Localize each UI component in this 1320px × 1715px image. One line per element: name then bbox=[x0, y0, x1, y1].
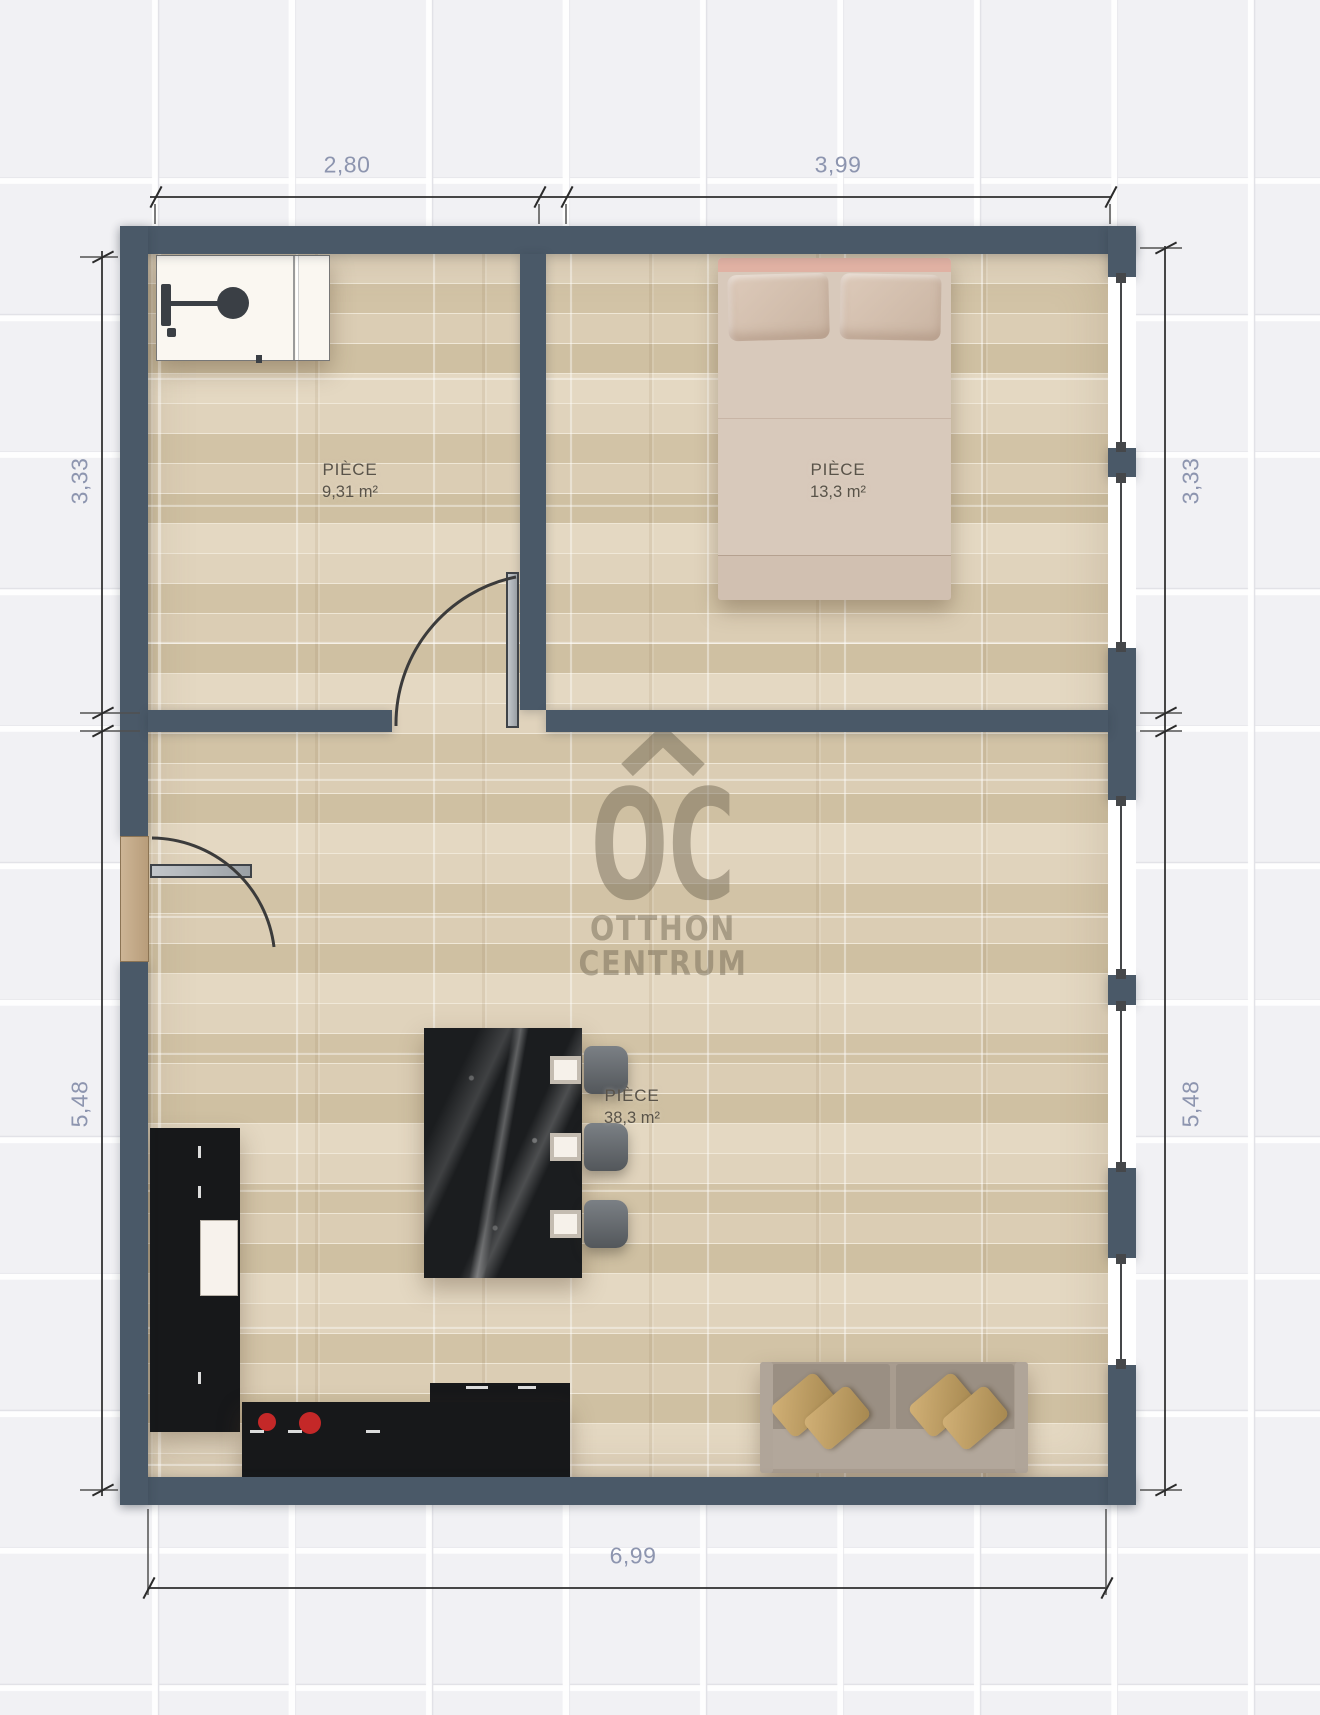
dimension-line-top bbox=[150, 196, 1112, 198]
bed-foot bbox=[718, 555, 951, 600]
cabinet-handle bbox=[198, 1146, 201, 1158]
window bbox=[1108, 1005, 1136, 1168]
shower-arm bbox=[169, 301, 223, 306]
bar-stool-seat bbox=[550, 1133, 581, 1161]
extension-line bbox=[80, 730, 140, 732]
wall-left-lower bbox=[120, 962, 148, 1505]
bar-stool-seat bbox=[550, 1056, 581, 1084]
extension-line bbox=[80, 712, 140, 714]
stove-burner-small bbox=[258, 1413, 276, 1431]
dim-top-right: 3,99 bbox=[815, 152, 862, 179]
cabinet-handle bbox=[518, 1386, 536, 1389]
cabinet-handle bbox=[466, 1386, 488, 1389]
window bbox=[1108, 477, 1136, 648]
window bbox=[1108, 800, 1136, 975]
room-name: PIÈCE bbox=[604, 1086, 660, 1106]
extension-line bbox=[538, 204, 540, 224]
wall-interior-vertical bbox=[520, 254, 546, 710]
cabinet-handle bbox=[198, 1186, 201, 1198]
dim-bottom: 6,99 bbox=[610, 1543, 657, 1570]
extension-line bbox=[154, 204, 156, 224]
room-area: 13,3 m² bbox=[810, 483, 866, 502]
stove-burner-large bbox=[299, 1412, 321, 1434]
wall-right-segment bbox=[1108, 1168, 1136, 1258]
sofa-armrest bbox=[1015, 1362, 1028, 1473]
dimension-line-bottom bbox=[148, 1587, 1106, 1589]
watermark-line2: CENTRUM bbox=[578, 945, 747, 982]
wall-right-segment bbox=[1108, 1365, 1136, 1505]
extension-line bbox=[147, 1509, 149, 1595]
bed-pillow-right bbox=[839, 273, 941, 341]
shower-drain bbox=[256, 355, 262, 363]
cabinet-handle bbox=[288, 1430, 302, 1433]
extension-line bbox=[1105, 1509, 1107, 1595]
watermark-line1: OTTHON bbox=[590, 910, 736, 949]
bed-pillow-left bbox=[727, 273, 830, 342]
interior-door-leaf bbox=[506, 572, 519, 728]
otthon-centrum-watermark: OC OTTHON CENTRUM bbox=[528, 722, 798, 982]
dim-left-lower: 5,48 bbox=[67, 1081, 94, 1128]
entry-door-leaf-open bbox=[150, 864, 252, 878]
wall-left-upper bbox=[120, 226, 148, 836]
bar-stool-back bbox=[584, 1123, 628, 1171]
dimension-line-left bbox=[101, 251, 103, 1496]
dim-left-upper: 3,33 bbox=[67, 458, 94, 505]
window bbox=[1108, 1258, 1136, 1365]
room-name: PIÈCE bbox=[322, 460, 378, 480]
bed-blanket-seam bbox=[718, 418, 951, 419]
dimension-line-right bbox=[1164, 246, 1166, 1496]
room-label-1: PIÈCE 9,31 m² bbox=[322, 460, 378, 502]
cabinet-handle bbox=[366, 1430, 380, 1433]
dim-right-upper: 3,33 bbox=[1178, 458, 1205, 505]
wall-interior-horizontal-right bbox=[546, 710, 1108, 732]
shower-head-icon bbox=[217, 287, 249, 319]
room-label-2: PIÈCE 13,3 m² bbox=[810, 460, 866, 502]
room-label-3: PIÈCE 38,3 m² bbox=[604, 1086, 660, 1128]
entry-door-leaf bbox=[120, 836, 149, 962]
wall-right-segment bbox=[1108, 226, 1136, 277]
wall-interior-horizontal-left bbox=[148, 710, 392, 732]
watermark-initials: OC bbox=[591, 757, 735, 934]
wall-bottom bbox=[120, 1477, 1136, 1505]
bar-stool-seat bbox=[550, 1210, 581, 1238]
kitchen-counter-bottom bbox=[242, 1402, 570, 1477]
bed-headboard bbox=[718, 258, 951, 272]
wall-top bbox=[120, 226, 1136, 254]
extension-line bbox=[565, 204, 567, 224]
kitchen-sink bbox=[200, 1220, 238, 1296]
double-bed bbox=[718, 258, 951, 600]
room-area: 9,31 m² bbox=[322, 483, 378, 502]
dim-top-left: 2,80 bbox=[324, 152, 371, 179]
shower-glass-divider bbox=[293, 256, 295, 360]
extension-line bbox=[1109, 204, 1111, 224]
cabinet-handle bbox=[198, 1372, 201, 1384]
cabinet-handle bbox=[250, 1430, 264, 1433]
wall-right-segment bbox=[1108, 648, 1136, 800]
room-area: 38,3 m² bbox=[604, 1109, 660, 1128]
room-name: PIÈCE bbox=[810, 460, 866, 480]
sofa-armrest bbox=[760, 1362, 773, 1473]
shower-unit bbox=[156, 255, 330, 361]
window bbox=[1108, 277, 1136, 448]
bar-stool-back bbox=[584, 1200, 628, 1248]
dim-right-lower: 5,48 bbox=[1178, 1081, 1205, 1128]
shower-valve bbox=[167, 328, 176, 337]
